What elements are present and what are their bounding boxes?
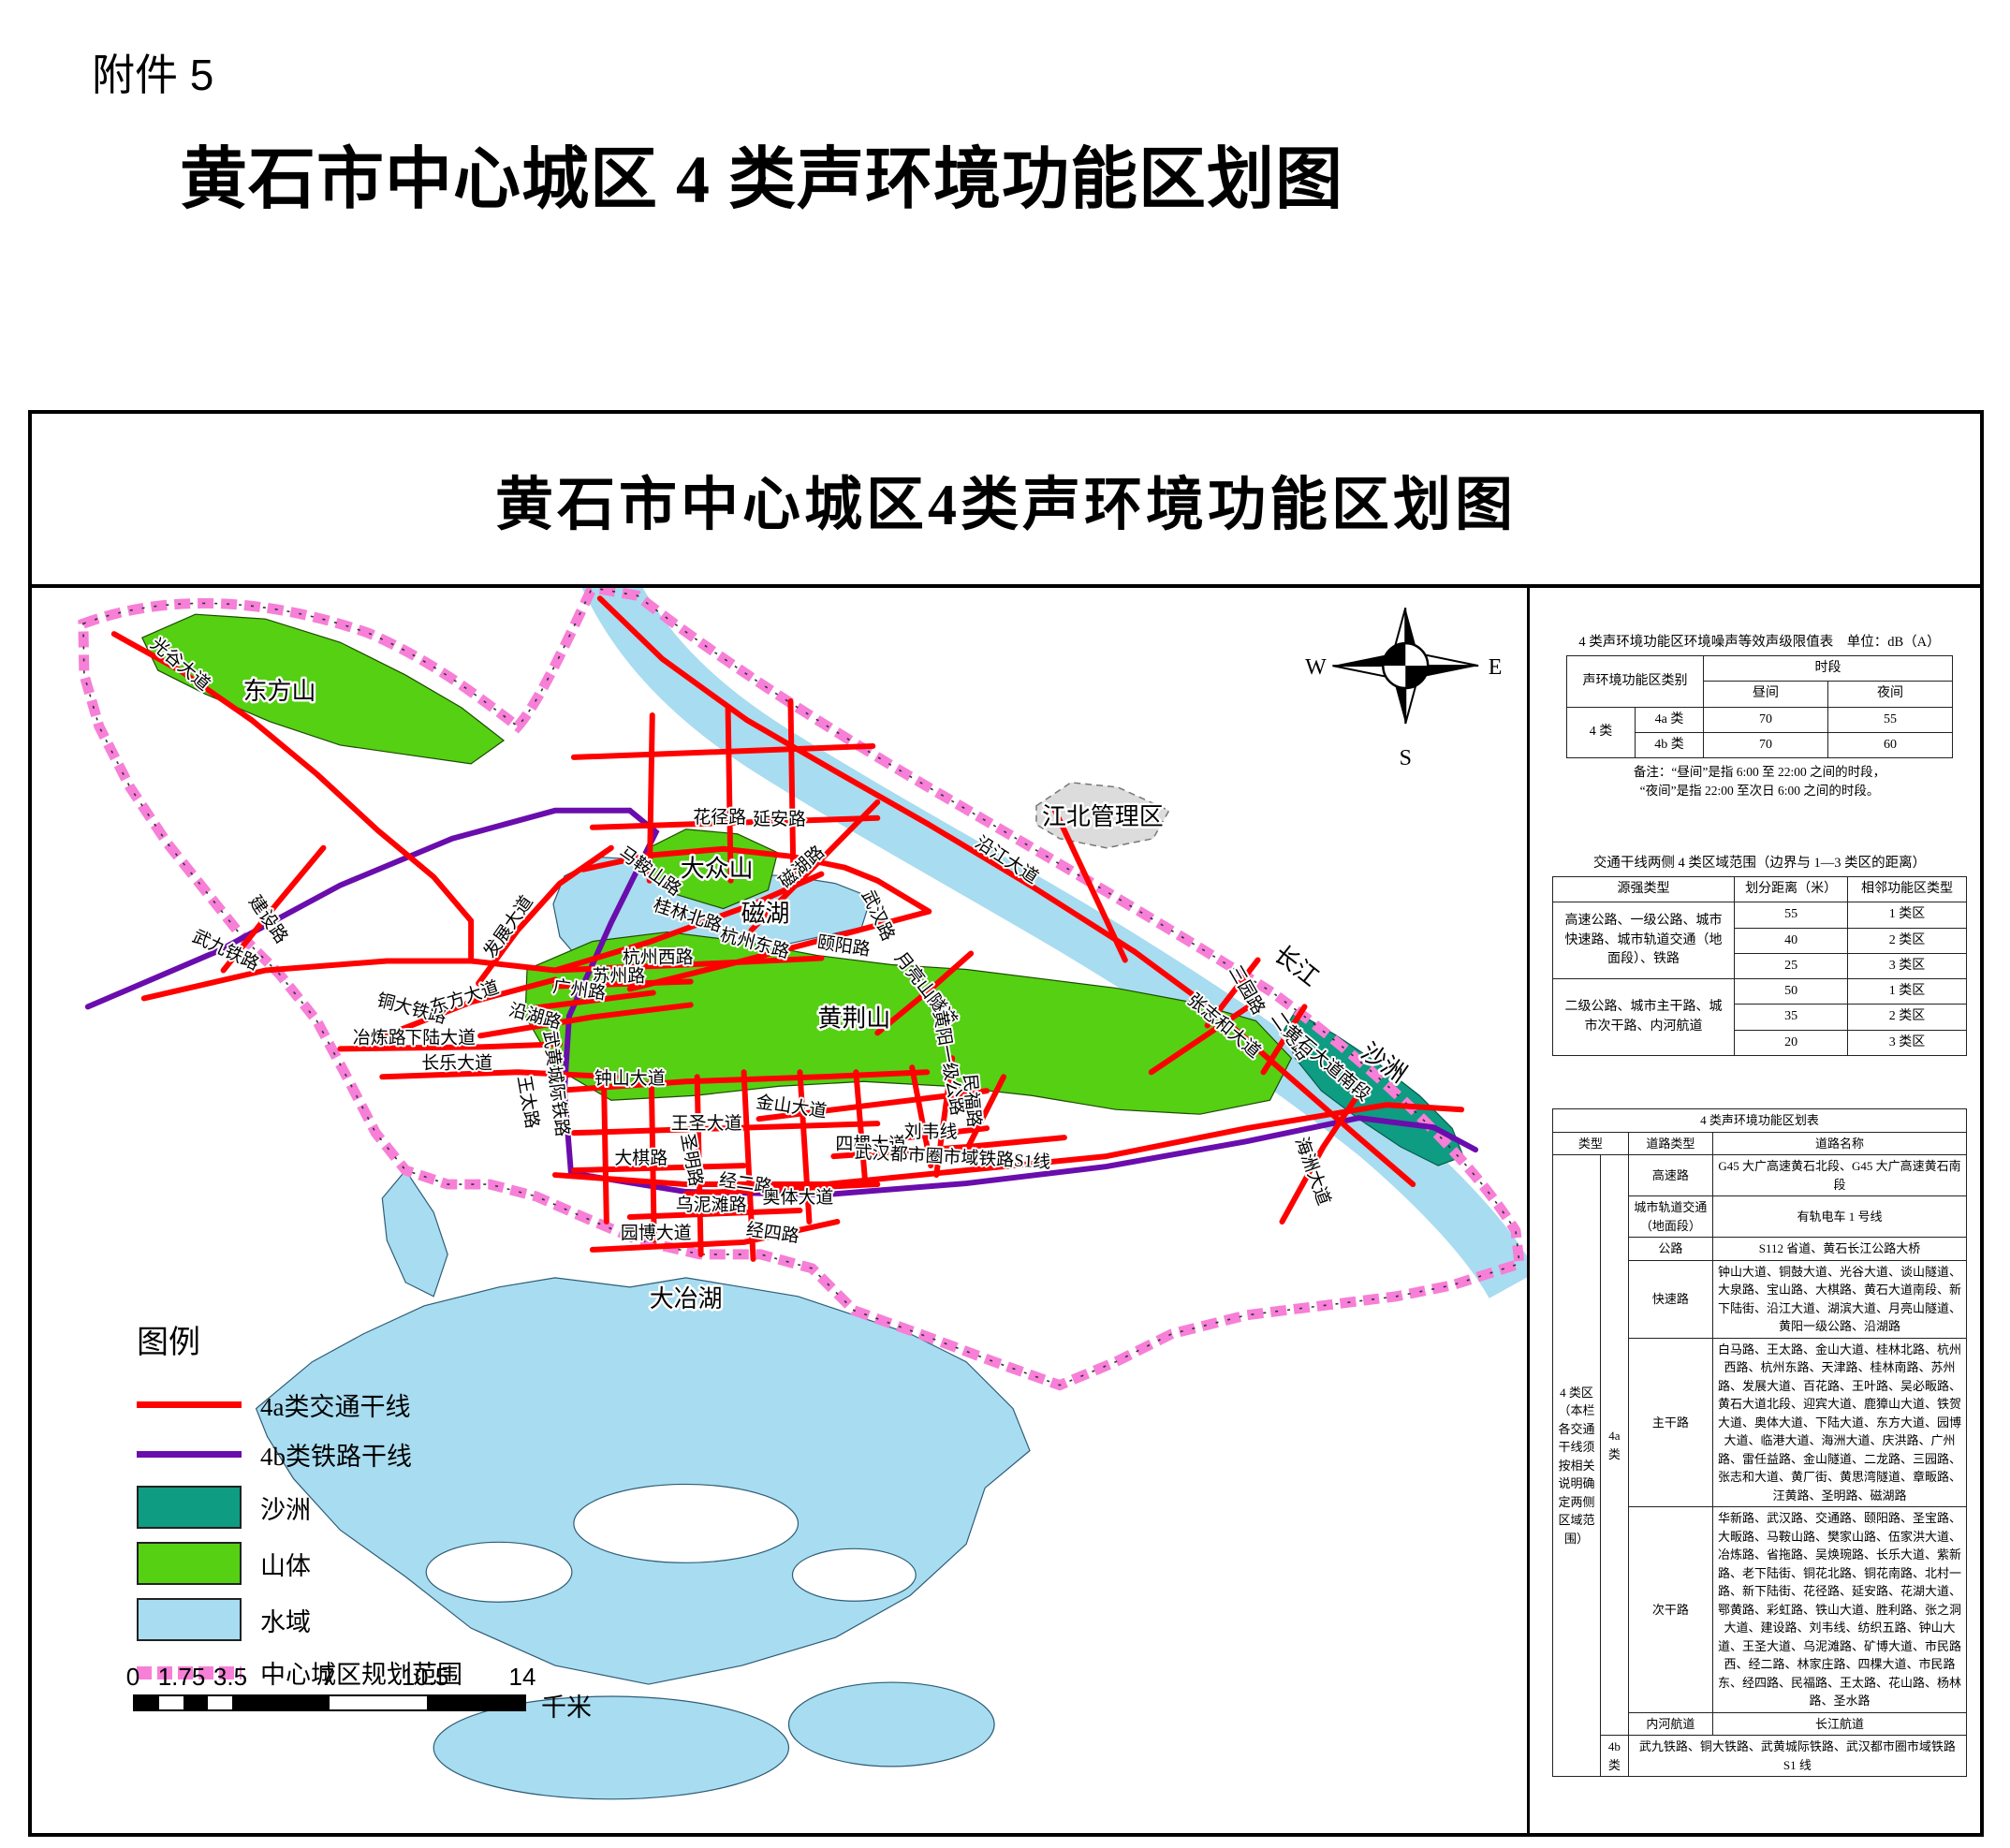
map-label: 王圣大道 <box>671 1113 742 1134</box>
compass-n: N <box>1398 588 1414 593</box>
scale-tick: 0 <box>126 1663 139 1692</box>
compass-e: E <box>1489 655 1503 680</box>
compass-w: W <box>1305 655 1327 680</box>
map-area: N S E W 东方山大众山磁湖黄荆山大冶湖长江沙洲江北管理区光谷大道建设路武九… <box>32 588 1530 1833</box>
legend-title: 图例 <box>137 1316 462 1362</box>
scale-segment <box>427 1696 524 1709</box>
map-label: 东方山 <box>243 678 316 705</box>
corridor-dist: 50 <box>1735 979 1848 1005</box>
scale-segment <box>232 1696 330 1709</box>
corridor-zone: 1 类区 <box>1848 902 1967 928</box>
corridor-table: 源强类型 划分距离（米） 相邻功能区类型 高速公路、一级公路、城市快速路、城市轨… <box>1552 876 1967 1056</box>
corridor-source: 高速公路、一级公路、城市快速路、城市轨道交通（地面段）、铁路 <box>1553 902 1735 979</box>
scale-segment <box>135 1696 159 1709</box>
south-water <box>788 1682 994 1767</box>
corridor-dist: 55 <box>1735 902 1848 928</box>
noise-limit-table: 声环境功能区类别 时段 昼间 夜间 4 类 4a 类 70 55 <box>1566 655 1953 758</box>
noise-sub: 4a 类 <box>1636 707 1704 732</box>
map-label: 乌泥滩路 <box>676 1195 747 1215</box>
corridor-zone: 2 类区 <box>1848 1005 1967 1030</box>
legend-swatch-fill <box>137 1598 242 1641</box>
corridor-dist: 20 <box>1735 1030 1848 1055</box>
corridor-zone: 3 类区 <box>1848 1030 1967 1055</box>
zoning-road-names: 有轨电车 1 号线 <box>1713 1196 1967 1238</box>
scale-segment <box>159 1696 183 1709</box>
zoning-road-names: 长江航道 <box>1713 1712 1967 1736</box>
scale-tick: 7 <box>321 1663 334 1692</box>
zoning-road-type: 公路 <box>1628 1238 1712 1261</box>
zoning-col-type: 类型 <box>1553 1132 1629 1155</box>
corridor-header: 相邻功能区类型 <box>1848 877 1967 902</box>
map-label: 大众山 <box>681 856 754 883</box>
noise-header-day: 昼间 <box>1704 682 1828 707</box>
legend-label: 山体 <box>260 1546 311 1582</box>
noise-note-line2: “夜间”是指 22:00 至次日 6:00 之间的时段。 <box>1552 782 1967 800</box>
legend-label: 4a类交通干线 <box>260 1386 410 1423</box>
noise-note-line1: 备注：“昼间”是指 6:00 至 22:00 之间的时段， <box>1552 763 1967 782</box>
map-label: 黄荆山 <box>817 1005 890 1032</box>
zoning-table-title: 4 类声环境功能区划表 <box>1553 1109 1967 1133</box>
map-label: 王太路 <box>513 1074 543 1130</box>
corridor-table-title: 交通干线两侧 4 类区域范围（边界与 1—3 类区的距离） <box>1552 852 1967 872</box>
noise-night: 60 <box>1828 732 1953 757</box>
noise-header-period: 时段 <box>1704 656 1953 682</box>
scale-tick: 3.5 <box>213 1663 247 1692</box>
zoning-zone-label: 4 类区（本栏各交通干线须按相关说明确定两侧区域范围） <box>1553 1155 1601 1777</box>
legend-item: 沙洲 <box>137 1486 462 1529</box>
zoning-road-names-4b: 武九铁路、铜大铁路、武黄城际铁路、武汉都市圈市域铁路 S1 线 <box>1628 1736 1966 1777</box>
zoning-road-names: G45 大广高速黄石北段、G45 大广高速黄石南段 <box>1713 1155 1967 1196</box>
zoning-block: 4 类声环境功能区划表 类型 道路类型 道路名称 4 类区（本栏各交通干线须按相… <box>1552 1108 1967 1777</box>
zoning-road-names: 钟山大道、铜鼓大道、光谷大道、谈山隧道、大泉路、宝山路、大棋路、黄石大道南段、新… <box>1713 1260 1967 1338</box>
map-label: 大冶湖 <box>650 1285 723 1313</box>
zoning-road-type: 快速路 <box>1628 1260 1712 1338</box>
map-label: 延安路 <box>753 809 806 829</box>
legend-swatch-fill <box>137 1542 242 1585</box>
legend-swatch-line <box>137 1401 242 1408</box>
map-label: 杭州西路 <box>623 946 694 967</box>
corridor-zone: 1 类区 <box>1848 979 1967 1005</box>
zoning-col-road-type: 道路类型 <box>1628 1132 1712 1155</box>
corridor-block: 交通干线两侧 4 类区域范围（边界与 1—3 类区的距离） 源强类型 划分距离（… <box>1552 852 1967 1056</box>
legend-items: 4a类交通干线4b类铁路干线沙洲山体水域中心城区规划范围 <box>137 1386 462 1691</box>
legend-label: 水域 <box>260 1602 311 1638</box>
scale-tick: 14 <box>509 1663 536 1692</box>
legend-label: 沙洲 <box>260 1489 311 1526</box>
legend-item: 山体 <box>137 1542 462 1585</box>
zoning-class-4b: 4b 类 <box>1601 1736 1629 1777</box>
compass-s: S <box>1400 746 1412 770</box>
corridor-source: 二级公路、城市主干路、城市次干路、内河航道 <box>1553 979 1735 1056</box>
lake-island <box>792 1548 916 1601</box>
map-label: 花径路 <box>693 807 746 828</box>
zoning-road-names: 白马路、王太路、金山大道、桂林北路、杭州西路、杭州东路、天津路、桂林南路、苏州路… <box>1713 1338 1967 1507</box>
page: 附件 5 黄石市中心城区 4 类声环境功能区划图 黄石市中心城区4类声环境功能区… <box>0 0 2010 1848</box>
scale-segment <box>208 1696 232 1709</box>
compass-icon: N S E W <box>1305 588 1502 770</box>
corridor-header: 源强类型 <box>1553 877 1735 902</box>
map-label: 大棋路 <box>614 1148 668 1168</box>
zoning-road-names: 华新路、武汉路、交通路、颐阳路、圣宝路、大畈路、马鞍山路、樊家山路、伍家洪大道、… <box>1713 1507 1967 1713</box>
map-label: 下陆大道 <box>404 1027 476 1048</box>
lake-island <box>574 1484 799 1562</box>
map-label: 奥体大道 <box>763 1187 834 1208</box>
frame-title: 黄石市中心城区4类声环境功能区划图 <box>32 414 1980 588</box>
corridor-header: 划分距离（米） <box>1735 877 1848 902</box>
corridor-dist: 40 <box>1735 928 1848 953</box>
noise-header-night: 夜间 <box>1828 682 1953 707</box>
scale-bar-segments <box>133 1694 526 1711</box>
legend-item: 4b类铁路干线 <box>137 1436 462 1473</box>
zoning-col-road-name: 道路名称 <box>1713 1132 1967 1155</box>
legend-item: 水域 <box>137 1598 462 1641</box>
map-label: 东方大道 <box>428 977 502 1019</box>
map-label: 刘韦线 <box>904 1122 958 1142</box>
zoning-road-type: 城市轨道交通（地面段） <box>1628 1196 1712 1238</box>
noise-header-category: 声环境功能区类别 <box>1567 656 1704 708</box>
map-label: 钟山大道 <box>594 1068 666 1089</box>
zoning-road-type: 内河航道 <box>1628 1712 1712 1736</box>
legend: 图例 4a类交通干线4b类铁路干线沙洲山体水域中心城区规划范围 <box>137 1316 462 1704</box>
legend-swatch-fill <box>137 1486 242 1529</box>
corridor-zone: 3 类区 <box>1848 953 1967 978</box>
map-label: 圣明路 <box>677 1132 707 1188</box>
corridor-zone: 2 类区 <box>1848 928 1967 953</box>
map-label: 长乐大道 <box>421 1052 492 1073</box>
noise-night: 55 <box>1828 707 1953 732</box>
zoning-class-4a: 4a 类 <box>1601 1155 1629 1736</box>
south-water <box>433 1696 788 1799</box>
noise-limit-block: 4 类声环境功能区环境噪声等效声级限值表 单位：dB（A） 声环境功能区类别 时… <box>1552 631 1967 801</box>
scale-unit: 千米 <box>541 1687 592 1723</box>
scale-tick: 10.5 <box>402 1663 449 1692</box>
corridor-dist: 35 <box>1735 1005 1848 1030</box>
map-label: 磁湖 <box>741 901 790 928</box>
zoning-road-names: S112 省道、黄石长江公路大桥 <box>1713 1238 1967 1261</box>
info-panel: 4 类声环境功能区环境噪声等效声级限值表 单位：dB（A） 声环境功能区类别 时… <box>1530 588 1980 1833</box>
legend-label: 4b类铁路干线 <box>260 1436 412 1473</box>
map-label: 发展大道 <box>479 892 537 962</box>
legend-item: 4a类交通干线 <box>137 1386 462 1423</box>
page-title: 黄石市中心城区 4 类声环境功能区划图 <box>180 124 1343 222</box>
noise-table-title: 4 类声环境功能区环境噪声等效声级限值表 单位：dB（A） <box>1552 631 1967 651</box>
noise-category: 4 类 <box>1567 707 1636 758</box>
scale-segment <box>330 1696 427 1709</box>
map-label: 冶炼路 <box>353 1027 406 1048</box>
zoning-road-type: 高速路 <box>1628 1155 1712 1196</box>
noise-note: 备注：“昼间”是指 6:00 至 22:00 之间的时段， “夜间”是指 22:… <box>1552 763 1967 801</box>
noise-day: 70 <box>1704 732 1828 757</box>
noise-day: 70 <box>1704 707 1828 732</box>
zoning-road-type: 主干路 <box>1628 1338 1712 1507</box>
lake-channel <box>382 1170 447 1297</box>
map-label: 园博大道 <box>621 1223 692 1243</box>
scale-tick: 1.75 <box>158 1663 206 1692</box>
zoning-table: 4 类声环境功能区划表 类型 道路类型 道路名称 4 类区（本栏各交通干线须按相… <box>1552 1108 1967 1777</box>
scale-bar: 01.753.5710.514 千米 <box>133 1663 657 1711</box>
map-frame: 黄石市中心城区4类声环境功能区划图 <box>28 410 1984 1837</box>
map-label: 江北管理区 <box>1042 803 1164 830</box>
map-label: 长江 <box>1269 940 1324 991</box>
zoning-road-type: 次干路 <box>1628 1507 1712 1713</box>
legend-swatch-line <box>137 1451 242 1458</box>
corridor-dist: 25 <box>1735 953 1848 978</box>
scale-segment <box>183 1696 208 1709</box>
noise-sub: 4b 类 <box>1636 732 1704 757</box>
attachment-label: 附件 5 <box>92 41 213 103</box>
